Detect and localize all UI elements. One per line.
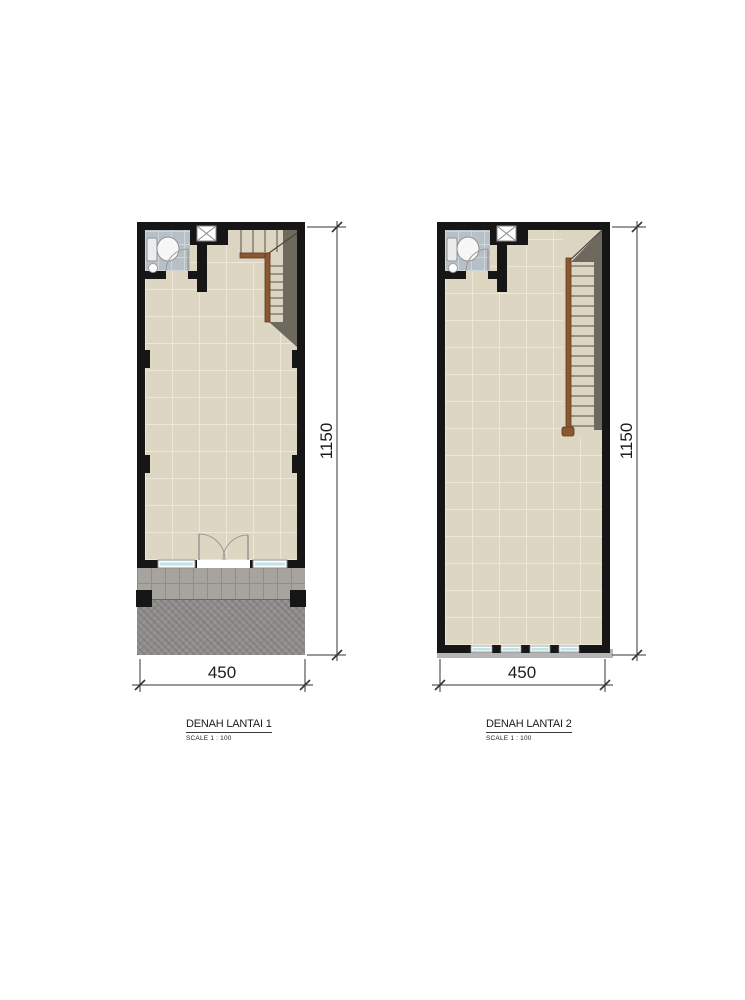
plan2-wall-bottom-left xyxy=(437,645,471,653)
plan2-shaft-walls xyxy=(490,222,528,245)
plan1-porch-column-right xyxy=(290,590,306,607)
plan2-width-dimension: 450 xyxy=(482,663,562,683)
plan2-window-mullion-3 xyxy=(550,645,559,653)
plan1-bathroom-floor xyxy=(145,230,190,271)
plan2-bathroom-floor xyxy=(445,230,490,271)
plan1-shaft-wall-stub xyxy=(197,245,207,292)
plan1-label: DENAH LANTAI 1 SCALE 1 : 100 xyxy=(186,714,272,742)
plan2-shaft-wall-stub xyxy=(497,245,507,292)
plan1-front-window-right xyxy=(253,560,287,568)
plan2-bathroom-wall-left xyxy=(437,271,466,279)
plan2-label: DENAH LANTAI 2 SCALE 1 : 100 xyxy=(486,714,572,742)
plan1-shaft-walls xyxy=(190,222,228,245)
plan1-stair-lower-flight xyxy=(269,258,283,322)
plan1-wall-bottom-left xyxy=(137,560,158,568)
plan1-driveway-paving xyxy=(137,600,305,655)
plan1-column-right-upper xyxy=(292,350,297,368)
plan1-title: DENAH LANTAI 1 xyxy=(186,718,272,733)
plan1-column-right-lower xyxy=(292,455,297,473)
plan1-front-window-left xyxy=(158,560,195,568)
plan1-porch-column-left xyxy=(136,590,152,607)
plan2-height-dimension: 1150 xyxy=(617,411,635,471)
plan2-wall-right xyxy=(602,222,610,653)
plan1-height-dimension: 1150 xyxy=(317,411,335,471)
plan2-window-mullion-1 xyxy=(492,645,501,653)
plan1-scale-note: SCALE 1 : 100 xyxy=(186,735,272,742)
plan1-width-dimension: 450 xyxy=(182,663,262,683)
plan1-bathroom-wall-left xyxy=(137,271,166,279)
plan2-scale-note: SCALE 1 : 100 xyxy=(486,735,572,742)
plan1-porch-floor xyxy=(137,568,305,600)
plan1-wall-bottom-jamb-right xyxy=(250,560,253,568)
plan2-title: DENAH LANTAI 2 xyxy=(486,718,572,733)
plan2-wall-bottom-right xyxy=(579,645,610,653)
plan2-stair-flight xyxy=(563,230,602,437)
plan2-window-mullion-2 xyxy=(521,645,530,653)
plan1-column-left-upper xyxy=(145,350,150,368)
plan1-wall-bottom-right xyxy=(287,560,305,568)
plan1-column-left-lower xyxy=(145,455,150,473)
drawing-sheet: 450 1150 450 1150 DENAH LANTAI 1 SCALE 1… xyxy=(0,0,745,1000)
plan2-wall-left xyxy=(437,222,445,653)
linework-overlay xyxy=(0,0,745,1000)
plan1-wall-right xyxy=(297,222,305,568)
plan1-wall-bottom-jamb-left xyxy=(195,560,197,568)
